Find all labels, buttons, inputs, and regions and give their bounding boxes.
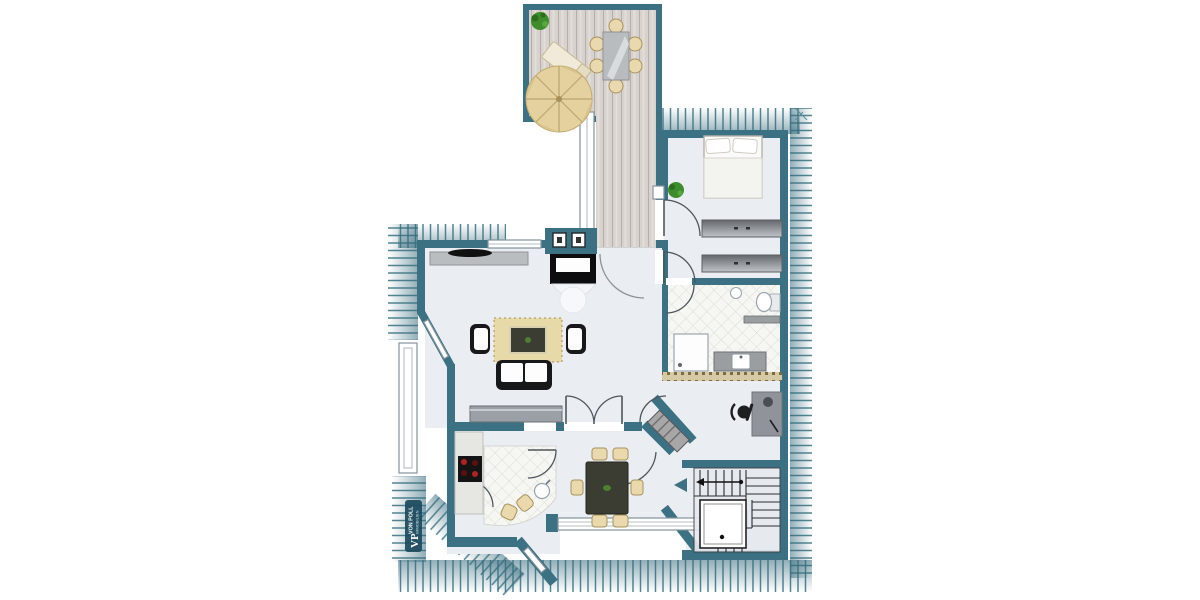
roof-edge-left-upper [388,224,418,340]
roof-edge-right [790,108,812,578]
chimney [545,228,597,254]
dining-chair [571,480,583,495]
double-bed [704,136,762,198]
armchair-left [470,324,490,354]
terrace-plant-icon [531,12,549,30]
coffee-table [510,327,546,353]
bathroom-vanity [714,352,766,371]
toilet [757,293,781,312]
parasol [526,66,592,132]
terrace [523,4,662,254]
deck-walkway-floor [596,122,656,250]
dining-table [586,462,628,514]
dining-chair [613,515,628,527]
shower [674,334,708,371]
armchair-right [566,324,586,354]
staircase [694,468,780,552]
wardrobe-1 [702,220,782,237]
bedroom-left-window [653,186,664,199]
watermark-logo: VP VON POLL IMMOBILIEN [405,500,422,552]
living-room-top-window [488,240,541,248]
stair-well [700,500,746,548]
desk [752,392,782,436]
dining-chair [592,515,607,527]
floorplan-svg: VP VON POLL IMMOBILIEN [0,0,1200,600]
dining-chair [613,448,628,460]
roof-edge-bottom [398,560,812,592]
bathroom-sink-round [731,288,742,299]
terrace-wall-top [523,4,662,10]
dining-chair [592,448,607,460]
floorplan-image: VP VON POLL IMMOBILIEN [0,0,1200,600]
bathroom-radiator [744,316,780,323]
watermark-subtitle: IMMOBILIEN [415,510,420,534]
dormer-window-left [399,343,417,473]
bedroom-plant-icon [668,182,684,198]
lowboard [470,406,562,422]
deck-window-left [580,112,594,230]
dining-chair [631,480,643,495]
wardrobe-2 [702,255,782,272]
watermark-monogram: VP [409,533,421,548]
sofa [496,360,552,390]
cooktop [458,456,482,482]
knee-wall [662,372,782,381]
